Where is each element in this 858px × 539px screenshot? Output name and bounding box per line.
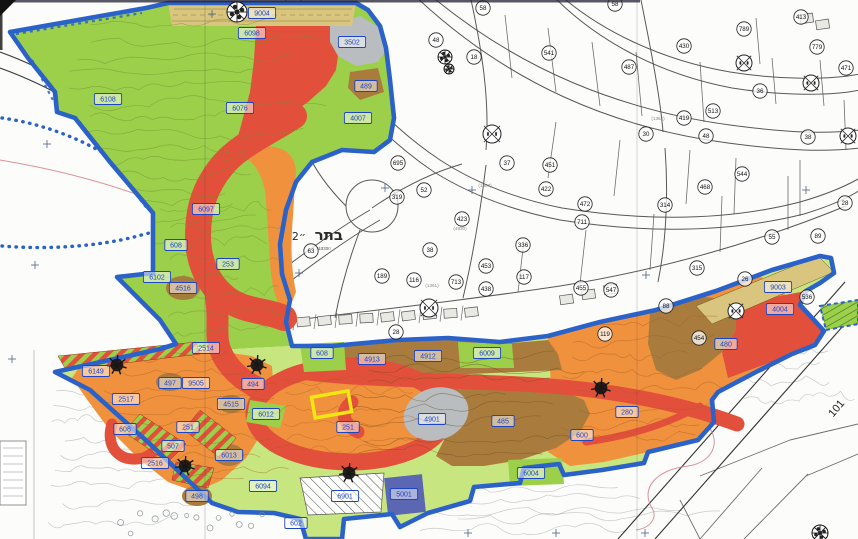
- parcel-number: 116: [407, 273, 421, 287]
- parcel-number: 472: [578, 197, 592, 211]
- zone-label: 3502: [338, 37, 365, 48]
- survey-symbol-icon: [803, 75, 819, 91]
- parcel-number: 471: [839, 61, 853, 75]
- svg-text:497: 497: [164, 381, 176, 388]
- svg-text:52: 52: [421, 187, 428, 194]
- scan-edge-left: [0, 0, 3, 50]
- svg-text:2517: 2517: [118, 397, 134, 404]
- zone-label: 2516: [141, 458, 168, 469]
- parcel-number: 711: [575, 215, 589, 229]
- svg-text:498: 498: [191, 494, 203, 501]
- parcel-number: 430: [677, 39, 691, 53]
- svg-text:6097: 6097: [198, 207, 214, 214]
- survey-symbol-icon: [420, 299, 438, 317]
- svg-text:3502: 3502: [344, 40, 360, 47]
- parcel-number: 63: [304, 244, 318, 258]
- place-name-secondary: ״2: [292, 230, 306, 243]
- svg-text:37: 37: [504, 160, 511, 167]
- crease-line: [204, 0, 206, 539]
- zone-label: 489: [355, 81, 377, 92]
- zone-label: 4007: [344, 113, 371, 124]
- building-footprint: [339, 314, 353, 324]
- svg-text:779: 779: [812, 44, 823, 51]
- scanned-zoning-plan-page: 101: [0, 0, 858, 539]
- svg-text:453: 453: [481, 263, 492, 270]
- svg-text:6004: 6004: [523, 471, 539, 478]
- zone-label: 608: [311, 348, 333, 359]
- svg-text:38: 38: [427, 247, 434, 254]
- zone-label: 602: [285, 518, 307, 529]
- svg-text:38: 38: [805, 134, 812, 141]
- svg-text:4901: 4901: [424, 417, 440, 424]
- parcel-number: 52: [417, 183, 431, 197]
- parcel-number: 89: [811, 229, 825, 243]
- parcel-number: 119: [598, 327, 612, 341]
- svg-text:6098: 6098: [244, 31, 260, 38]
- parcel-number: 779: [810, 40, 824, 54]
- svg-text:419: 419: [679, 115, 690, 122]
- svg-text:88: 88: [663, 303, 670, 310]
- svg-text:430: 430: [679, 43, 690, 50]
- zone-label: 6901: [331, 491, 358, 502]
- parcel-number: 55: [765, 230, 779, 244]
- svg-text:6901: 6901: [337, 494, 353, 501]
- parcel-number: 26: [738, 272, 752, 286]
- svg-text:507: 507: [167, 444, 179, 451]
- svg-text:55: 55: [769, 234, 776, 241]
- zone-label: 507: [162, 441, 184, 452]
- zone-label: 608: [165, 240, 187, 251]
- svg-text:4913: 4913: [364, 357, 380, 364]
- parcel-number: 454: [692, 331, 706, 345]
- parcel-number: 117: [517, 270, 531, 284]
- parcel-number: 38: [423, 243, 437, 257]
- parcel-number: 336: [516, 238, 530, 252]
- survey-symbol-icon: [483, 125, 501, 143]
- svg-text:471: 471: [841, 65, 852, 72]
- svg-text:541: 541: [544, 50, 555, 57]
- svg-text:5001: 5001: [396, 492, 412, 499]
- zone-label: 2517: [112, 394, 139, 405]
- legend-fragment: [0, 441, 26, 505]
- svg-text:711: 711: [577, 219, 587, 226]
- zone-label: 280: [616, 407, 638, 418]
- svg-text:608: 608: [170, 243, 182, 250]
- parcel-number: 58: [476, 1, 490, 15]
- svg-text:89: 89: [815, 233, 822, 240]
- plan-map-canvas[interactable]: 101: [0, 0, 858, 539]
- zone-label: 253: [217, 259, 239, 270]
- parcel-number: 28: [389, 325, 403, 339]
- rosette-symbol-icon: [227, 2, 247, 22]
- svg-text:119: 119: [600, 331, 610, 338]
- zone-label: 4901: [418, 414, 445, 425]
- parcel-number: 48: [699, 129, 713, 143]
- zone-label: 485: [492, 416, 514, 427]
- svg-text:608: 608: [316, 351, 328, 358]
- zone-label: 5001: [390, 489, 417, 500]
- crease-line: [636, 0, 638, 539]
- svg-text:454: 454: [694, 335, 705, 342]
- zone-label: 9004: [248, 8, 275, 19]
- svg-text:423: 423: [457, 216, 468, 223]
- micro-text: (1364): [651, 116, 665, 121]
- building-footprint: [380, 312, 394, 322]
- micro-text: (1361): [425, 283, 439, 288]
- svg-text:608: 608: [119, 427, 131, 434]
- svg-text:6013: 6013: [221, 453, 237, 460]
- zone-label: 6009: [473, 348, 500, 359]
- svg-text:455: 455: [576, 285, 587, 292]
- building-footprint: [360, 313, 374, 323]
- micro-text: (4930): [453, 226, 467, 231]
- svg-text:695: 695: [393, 160, 404, 167]
- parcel-number: 544: [735, 167, 749, 181]
- parcel-number: 547: [604, 283, 618, 297]
- parcel-number: 314: [658, 198, 672, 212]
- svg-text:30: 30: [643, 131, 650, 138]
- svg-text:63: 63: [308, 248, 315, 255]
- crease-line: [33, 350, 35, 539]
- zone-label: 497: [159, 378, 181, 389]
- zone-label: 494: [242, 379, 264, 390]
- parcel-number: 453: [479, 259, 493, 273]
- building-footprint: [297, 317, 311, 327]
- svg-text:58: 58: [480, 5, 487, 12]
- zone-label: 6004: [517, 468, 544, 479]
- svg-text:6012: 6012: [258, 412, 274, 419]
- svg-text:6149: 6149: [88, 369, 104, 376]
- zone-label: 480: [715, 339, 737, 350]
- svg-text:9004: 9004: [254, 11, 270, 18]
- zone-label: 4515: [217, 399, 244, 410]
- svg-text:28: 28: [393, 329, 400, 336]
- svg-text:253: 253: [222, 262, 234, 269]
- zone-label: 6108: [94, 94, 121, 105]
- parcel-number: 536: [800, 290, 814, 304]
- survey-symbol-icon: [728, 303, 744, 319]
- svg-text:6094: 6094: [255, 484, 271, 491]
- svg-text:4004: 4004: [772, 307, 788, 314]
- zone-label: 6012: [252, 409, 279, 420]
- building-footprint: [560, 294, 574, 305]
- svg-text:9505: 9505: [188, 381, 204, 388]
- parcel-number: 695: [391, 156, 405, 170]
- svg-text:36: 36: [757, 88, 764, 95]
- svg-text:117: 117: [519, 274, 529, 281]
- svg-text:4515: 4515: [223, 402, 239, 409]
- parcel-number: 189: [375, 269, 389, 283]
- parcel-number: 18: [467, 50, 481, 64]
- zone-label: 6102: [143, 272, 170, 283]
- micro-text: (1367): [478, 183, 492, 188]
- parcel-number: 455: [574, 281, 588, 295]
- svg-text:9003: 9003: [770, 285, 786, 292]
- svg-text:189: 189: [377, 273, 388, 280]
- parcel-number: 422: [539, 182, 553, 196]
- svg-text:48: 48: [703, 133, 710, 140]
- svg-text:251: 251: [182, 425, 194, 432]
- zone-label: 6098: [238, 28, 265, 39]
- place-name-main: בתר: [315, 226, 343, 244]
- parcel-number: 38: [801, 130, 815, 144]
- svg-text:336: 336: [518, 242, 529, 249]
- parcel-number: 319: [390, 190, 404, 204]
- zone-label: 6149: [82, 366, 109, 377]
- parcel-number: 413: [794, 10, 808, 24]
- parcel-number: 28: [838, 196, 852, 210]
- svg-text:789: 789: [739, 26, 750, 33]
- survey-symbol-icon: [736, 55, 752, 71]
- svg-text:319: 319: [392, 194, 403, 201]
- parcel-number: 419: [677, 111, 691, 125]
- zone-label: 4913: [358, 354, 385, 365]
- svg-text:494: 494: [247, 382, 259, 389]
- svg-text:6076: 6076: [232, 106, 248, 113]
- building-footprint: [816, 19, 830, 30]
- svg-text:314: 314: [660, 202, 671, 209]
- zone-label: 251: [337, 422, 359, 433]
- zone-label: 6013: [215, 450, 242, 461]
- svg-text:451: 451: [545, 162, 556, 169]
- svg-text:487: 487: [624, 64, 635, 71]
- svg-text:4007: 4007: [350, 116, 366, 123]
- svg-text:485: 485: [497, 419, 509, 426]
- svg-text:536: 536: [802, 294, 813, 301]
- svg-text:280: 280: [621, 410, 633, 417]
- parcel-number: 487: [622, 60, 636, 74]
- svg-text:251: 251: [342, 425, 354, 432]
- svg-text:2516: 2516: [147, 461, 163, 468]
- rosette-symbol-icon: [438, 50, 452, 64]
- parcel-number: 468: [698, 180, 712, 194]
- parcel-number: 30: [639, 127, 653, 141]
- svg-text:18: 18: [471, 54, 478, 61]
- svg-text:468: 468: [700, 184, 711, 191]
- rosette-symbol-icon: [812, 525, 828, 539]
- svg-text:116: 116: [409, 277, 419, 284]
- building-footprint: [464, 307, 478, 317]
- svg-text:600: 600: [576, 433, 588, 440]
- parcel-number: 36: [753, 84, 767, 98]
- svg-text:2514: 2514: [198, 346, 214, 353]
- parcel-number: 451: [543, 158, 557, 172]
- parcel-number: 541: [542, 46, 556, 60]
- svg-text:4912: 4912: [420, 354, 436, 361]
- rosette-symbol-icon: [444, 64, 454, 74]
- building-footprint: [444, 308, 458, 318]
- zone-label: 6076: [226, 103, 253, 114]
- svg-text:472: 472: [580, 201, 591, 208]
- parcel-number: 88: [659, 299, 673, 313]
- parcel-number: 438: [479, 282, 493, 296]
- svg-text:6108: 6108: [100, 97, 116, 104]
- svg-text:602: 602: [290, 521, 302, 528]
- parcel-number: 513: [706, 104, 720, 118]
- zone-label: 600: [571, 430, 593, 441]
- svg-text:6009: 6009: [479, 351, 495, 358]
- svg-text:480: 480: [720, 342, 732, 349]
- scan-edge-top: [0, 0, 640, 3]
- svg-text:422: 422: [541, 186, 552, 193]
- svg-text:4516: 4516: [175, 286, 191, 293]
- svg-text:315: 315: [692, 265, 703, 272]
- svg-text:26: 26: [742, 276, 749, 283]
- parcel-number: 37: [500, 156, 514, 170]
- zone-label: 6094: [249, 481, 276, 492]
- svg-text:544: 544: [737, 171, 748, 178]
- svg-text:48: 48: [433, 37, 440, 44]
- parcel-number: 789: [737, 22, 751, 36]
- svg-text:6102: 6102: [149, 275, 165, 282]
- zone-label: 4516: [169, 283, 196, 294]
- svg-text:489: 489: [360, 84, 372, 91]
- svg-text:28: 28: [842, 200, 849, 207]
- zone-label: 251: [177, 422, 199, 433]
- parcel-number: 713: [449, 275, 463, 289]
- parcel-number: 315: [690, 261, 704, 275]
- zone-label: 9003: [764, 282, 791, 293]
- svg-text:713: 713: [451, 279, 462, 286]
- svg-text:547: 547: [606, 287, 617, 294]
- zone-label: 4912: [414, 351, 441, 362]
- building-footprint: [401, 310, 415, 321]
- survey-symbol-icon: [840, 128, 856, 144]
- svg-text:413: 413: [796, 14, 807, 21]
- svg-text:513: 513: [708, 108, 719, 115]
- svg-text:438: 438: [481, 286, 492, 293]
- zone-label: 608: [114, 424, 136, 435]
- building-footprint: [317, 315, 331, 325]
- parcel-number: 423: [455, 212, 469, 226]
- parcel-number: 48: [429, 33, 443, 47]
- zone-label: 4004: [766, 304, 793, 315]
